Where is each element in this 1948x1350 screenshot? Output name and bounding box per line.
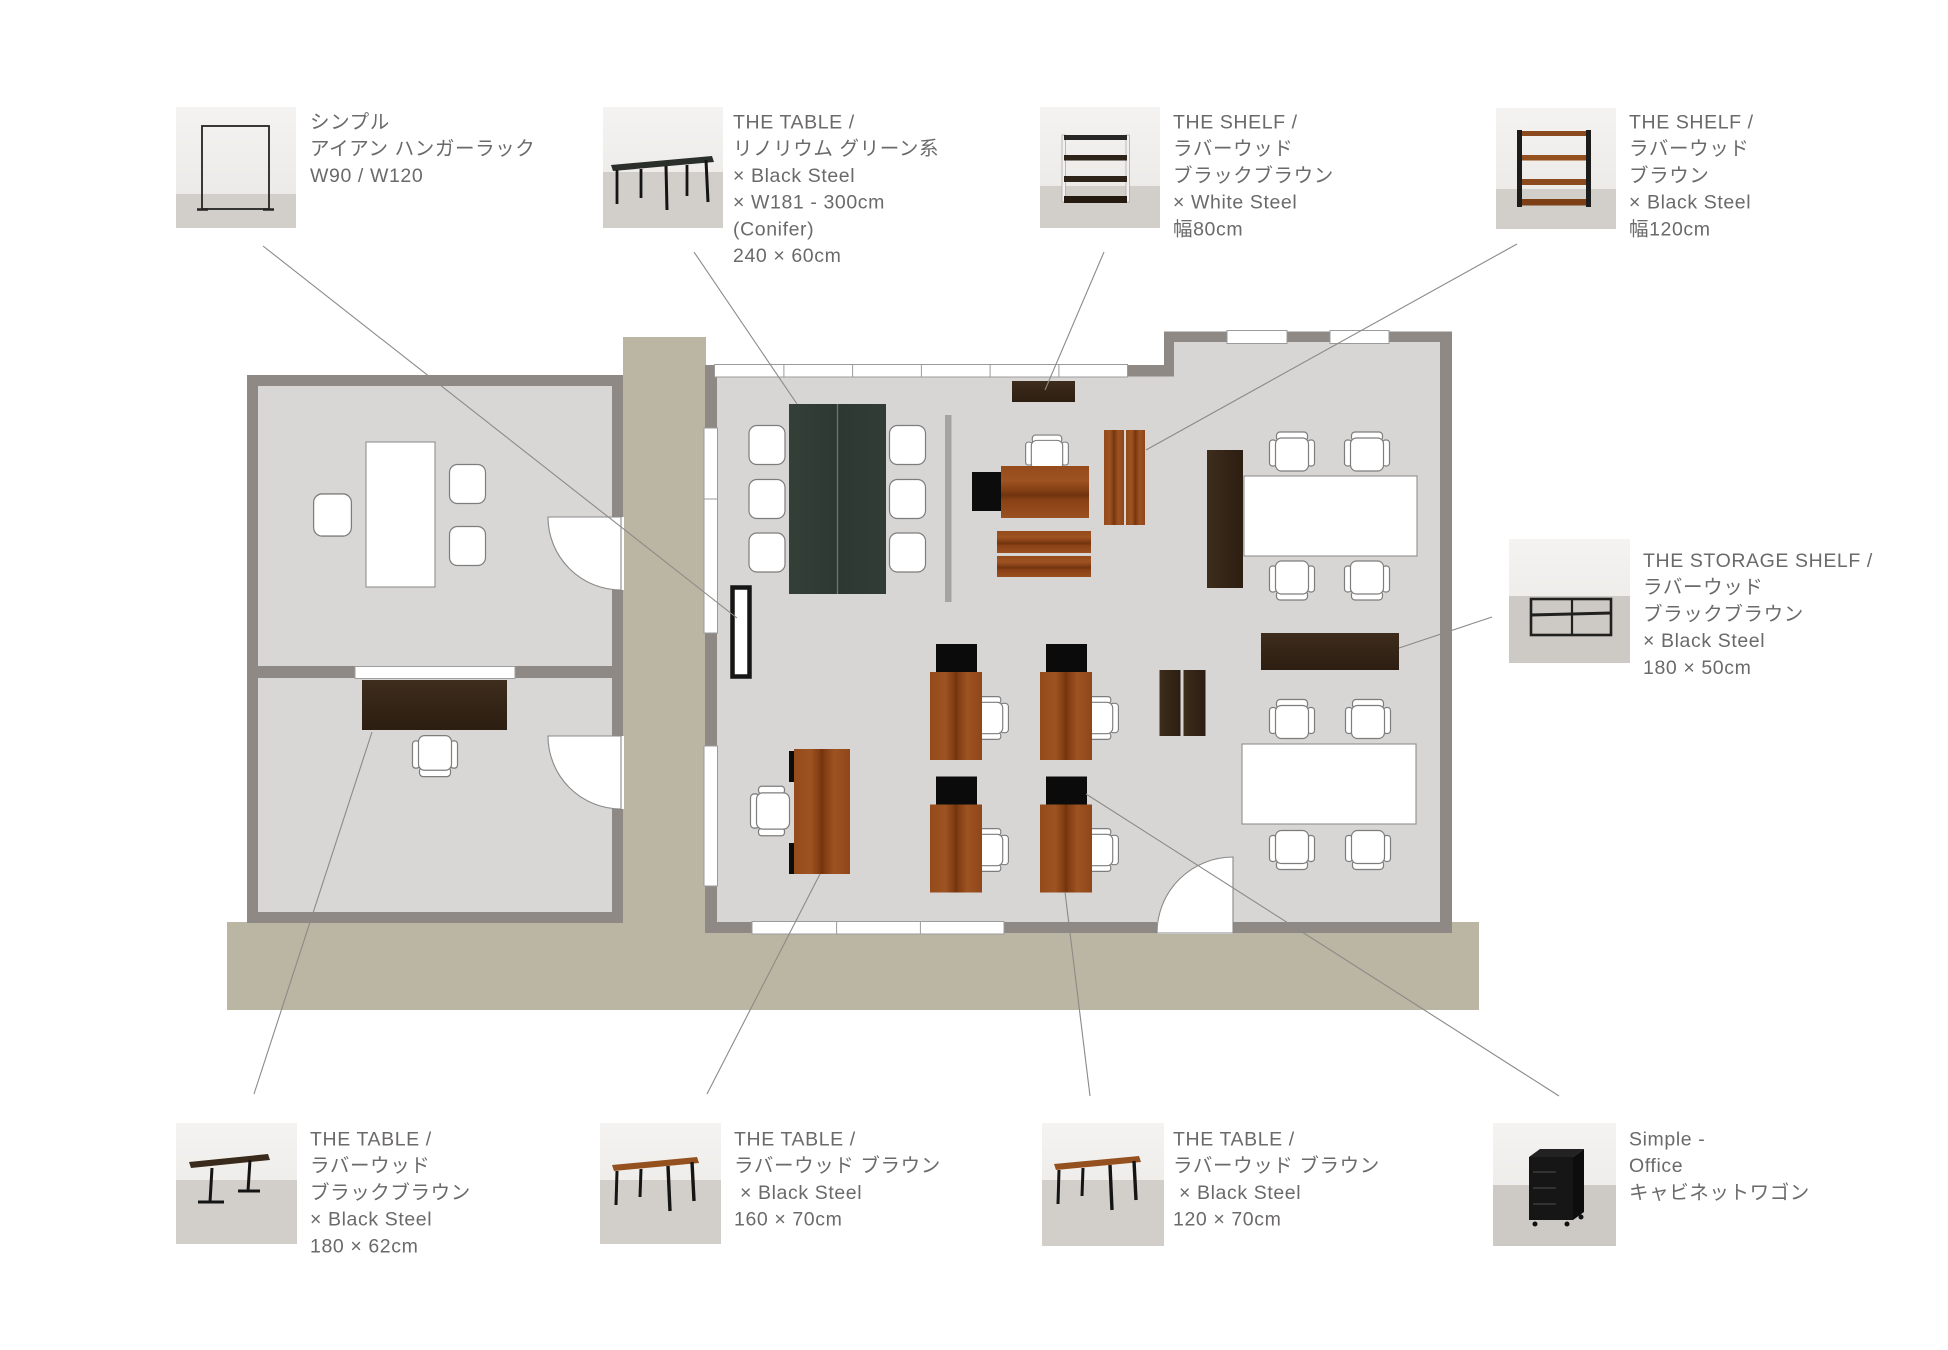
svg-text:W90 / W120: W90 / W120 [310,165,423,187]
svg-text:Office: Office [1629,1155,1683,1177]
svg-text:(Conifer): (Conifer) [733,218,814,240]
svg-text:× W181 - 300cm: × W181 - 300cm [733,192,885,214]
svg-text:シンプル: シンプル [310,112,390,134]
svg-text:ラバーウッド ブラウン: ラバーウッド ブラウン [1173,1154,1380,1177]
svg-text:240 × 60cm: 240 × 60cm [733,245,841,267]
svg-text:THE TABLE /: THE TABLE / [734,1129,856,1151]
svg-text:Simple -: Simple - [1629,1129,1705,1151]
svg-text:ラバーウッド: ラバーウッド [1629,138,1749,160]
svg-text:180 × 62cm: 180 × 62cm [310,1235,418,1257]
svg-text:× Black Steel: × Black Steel [1179,1182,1301,1204]
svg-text:ラバーウッド: ラバーウッド [1173,138,1293,160]
svg-text:× Black Steel: × Black Steel [740,1182,862,1204]
svg-text:アイアン ハンガーラック: アイアン ハンガーラック [310,138,535,160]
svg-text:THE TABLE /: THE TABLE / [733,112,855,134]
svg-text:THE SHELF /: THE SHELF / [1173,112,1298,134]
svg-text:THE SHELF /: THE SHELF / [1629,112,1754,134]
svg-text:ラバーウッド: ラバーウッド [310,1155,430,1177]
svg-text:ブラックブラウン: ブラックブラウン [1643,602,1804,625]
svg-text:× Black Steel: × Black Steel [733,165,855,187]
svg-text:× Black Steel: × Black Steel [1643,630,1765,652]
svg-text:THE TABLE /: THE TABLE / [1173,1129,1295,1151]
svg-text:180 × 50cm: 180 × 50cm [1643,657,1751,679]
svg-text:ラバーウッド ブラウン: ラバーウッド ブラウン [734,1154,941,1177]
svg-text:THE TABLE /: THE TABLE / [310,1129,432,1151]
svg-text:リノリウム グリーン系: リノリウム グリーン系 [733,138,939,160]
svg-text:× Black Steel: × Black Steel [1629,192,1751,214]
svg-text:THE STORAGE SHELF /: THE STORAGE SHELF / [1643,550,1873,572]
svg-text:キャビネットワゴン: キャビネットワゴン [1629,1182,1810,1204]
svg-text:幅80cm: 幅80cm [1173,218,1243,240]
svg-text:ブラックブラウン: ブラックブラウン [310,1181,471,1204]
svg-text:ブラウン: ブラウン [1629,164,1709,187]
svg-text:× White Steel: × White Steel [1173,192,1297,214]
svg-text:× Black Steel: × Black Steel [310,1209,432,1231]
svg-text:ラバーウッド: ラバーウッド [1643,577,1763,599]
svg-text:160 × 70cm: 160 × 70cm [734,1209,842,1231]
svg-text:幅120cm: 幅120cm [1629,218,1711,240]
svg-text:120 × 70cm: 120 × 70cm [1173,1209,1281,1231]
svg-text:ブラックブラウン: ブラックブラウン [1173,164,1334,187]
